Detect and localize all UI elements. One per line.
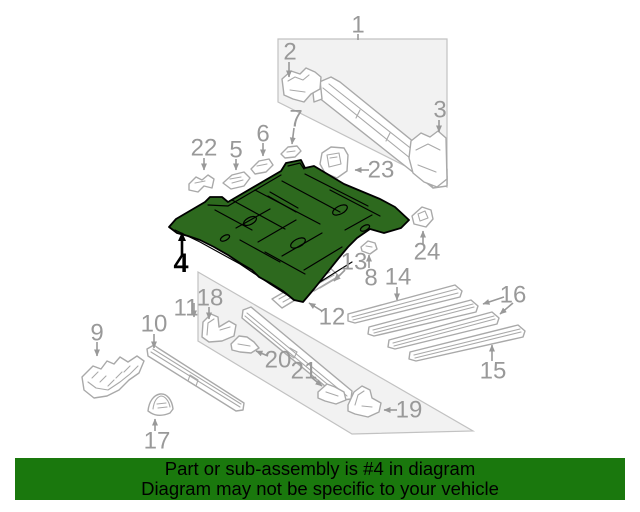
callout-15: 15	[480, 345, 507, 385]
callout-12: 12	[309, 303, 345, 331]
part-6-art	[251, 159, 273, 174]
callout-12-label: 12	[319, 304, 346, 331]
callout-3-label: 3	[433, 97, 446, 124]
callout-9: 9	[90, 320, 103, 357]
callout-18-label: 18	[197, 285, 224, 312]
callout-7: 7	[289, 106, 302, 145]
callout-21: 21	[291, 358, 322, 387]
callout-11-label: 11	[174, 295, 199, 322]
callout-16-label: 16	[500, 282, 527, 309]
banner-line-2: Diagram may not be specific to your vehi…	[141, 479, 499, 499]
callout-4-label: 4	[173, 248, 188, 278]
callout-11: 11	[174, 295, 199, 322]
part-5-art	[223, 172, 250, 189]
callout-1: 1	[351, 12, 364, 41]
callout-5-label: 5	[229, 137, 242, 164]
part-7-art	[281, 146, 301, 158]
part-3-art	[409, 131, 447, 187]
callout-4: 4	[173, 233, 188, 278]
callout-14: 14	[385, 264, 412, 301]
callout-6: 6	[256, 121, 269, 157]
callout-16: 16	[483, 282, 526, 315]
callout-5: 5	[229, 137, 242, 171]
part-22-art	[189, 175, 214, 192]
callout-13-label: 13	[341, 249, 368, 276]
callout-22: 22	[191, 135, 218, 171]
part-24-art	[412, 207, 433, 227]
callout-17: 17	[144, 419, 171, 455]
callout-14-label: 14	[385, 264, 412, 291]
callout-22-label: 22	[191, 135, 218, 162]
callout-19-label: 19	[396, 397, 423, 424]
callout-23-label: 23	[368, 157, 395, 184]
callout-15-label: 15	[480, 358, 507, 385]
callout-23: 23	[355, 157, 394, 184]
parts-diagram: 123456789101112131415161718192021222324 …	[0, 0, 640, 512]
banner-line-1: Part or sub-assembly is #4 in diagram	[165, 459, 476, 479]
callout-24: 24	[414, 231, 441, 266]
callout-20-label: 20	[265, 347, 292, 374]
callout-6-label: 6	[256, 121, 269, 148]
callout-17-label: 17	[144, 428, 171, 455]
callout-10: 10	[141, 311, 168, 349]
callout-1-label: 1	[351, 12, 364, 39]
callout-7-label: 7	[289, 106, 302, 133]
part-9-art	[82, 356, 144, 398]
highlight-banner: Part or sub-assembly is #4 in diagram Di…	[15, 458, 625, 500]
part-17-art	[148, 394, 173, 415]
callout-10-label: 10	[141, 311, 168, 338]
callout-9-label: 9	[90, 320, 103, 347]
callout-2-label: 2	[283, 39, 296, 66]
callout-24-label: 24	[414, 239, 441, 266]
diagram-canvas: 123456789101112131415161718192021222324	[0, 0, 640, 512]
callout-21-label: 21	[291, 358, 318, 385]
